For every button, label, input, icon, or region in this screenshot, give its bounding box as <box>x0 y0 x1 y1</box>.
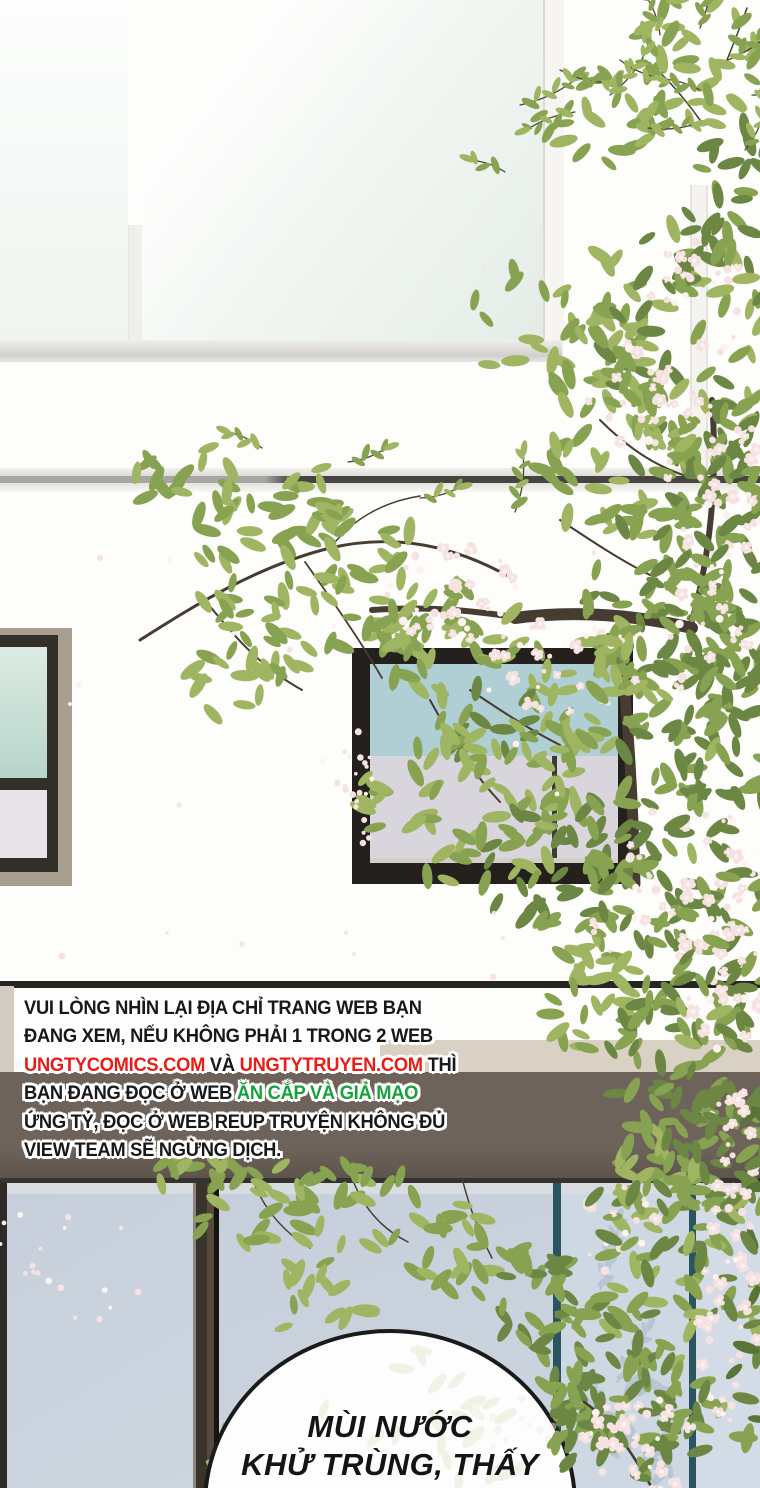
bottom-window-pane-left <box>0 1194 193 1488</box>
watermark-line: UNGTYCOMICS.COM VÀ UNGTYTRUYEN.COM THÌ <box>24 1051 513 1079</box>
bottom-window-teal-divider-2 <box>689 1183 696 1488</box>
wall-sill-shadow <box>0 483 760 492</box>
watermark-segment: ỨNG TỶ, ĐỌC Ở WEB REUP TRUYỆN KHÔNG ĐỦ <box>24 1111 445 1133</box>
watermark-text: VUI LÒNG NHÌN LẠI ĐỊA CHỈ TRANG WEB BẠNĐ… <box>24 994 513 1164</box>
watermark-segment: VIEW TEAM SẼ NGỪNG DỊCH. <box>24 1139 281 1161</box>
wall-sill-band <box>0 468 760 476</box>
watermark-segment: ĐANG XEM, NẾU KHÔNG PHẢI 1 TRONG 2 WEB <box>24 1025 433 1047</box>
center-window-sill-strip <box>370 858 618 863</box>
skylight-glass-left <box>0 0 128 340</box>
speech-bubble-text: MÙI NƯỚC KHỬ TRÙNG, THẤY <box>205 1408 575 1484</box>
skylight-glass-main <box>142 0 543 340</box>
watermark-segment: VÀ <box>205 1054 240 1076</box>
bottom-window-pane-far-right <box>696 1194 760 1488</box>
watermark-segment: BẠN ĐANG ĐỌC Ở WEB <box>24 1082 237 1104</box>
wall-beige-strip-left <box>0 986 14 1072</box>
bottom-window-light-strip <box>0 1183 760 1194</box>
left-window-glass-lower <box>0 790 47 858</box>
skylight-frame-right <box>543 0 564 362</box>
watermark-segment: VUI LÒNG NHÌN LẠI ĐỊA CHỈ TRANG WEB BẠN <box>24 997 422 1019</box>
watermark-line: ỨNG TỶ, ĐỌC Ở WEB REUP TRUYỆN KHÔNG ĐỦ <box>24 1108 513 1136</box>
speech-line: KHỬ TRÙNG, THẤY <box>205 1446 575 1484</box>
skylight-sill <box>0 340 562 362</box>
center-window-mullion <box>552 756 557 858</box>
wall-sill-dark-line <box>0 476 760 483</box>
watermark-line: VUI LÒNG NHÌN LẠI ĐỊA CHỈ TRANG WEB BẠN <box>24 994 513 1022</box>
watermark-line: ĐANG XEM, NẾU KHÔNG PHẢI 1 TRONG 2 WEB <box>24 1022 513 1050</box>
watermark-line: BẠN ĐANG ĐỌC Ở WEB ĂN CẮP VÀ GIẢ MẠO <box>24 1079 513 1107</box>
wall-frame-faint-line <box>690 185 708 473</box>
watermark-segment: THÌ <box>423 1054 457 1076</box>
watermark-line: VIEW TEAM SẼ NGỪNG DỊCH. <box>24 1136 513 1164</box>
center-window-glass-lower <box>370 756 618 858</box>
left-window-glass-upper <box>0 647 47 778</box>
bottom-window-pane-right <box>561 1194 689 1488</box>
watermark-segment: ĂN CẮP VÀ GIẢ MẠO <box>237 1082 418 1104</box>
watermark-segment: UNGTYTRUYEN.COM <box>240 1054 423 1076</box>
watermark-segment: UNGTYCOMICS.COM <box>24 1054 205 1076</box>
center-window-glass-upper <box>370 664 618 756</box>
speech-line: MÙI NƯỚC <box>205 1408 575 1446</box>
comic-page: MÙI NƯỚC KHỬ TRÙNG, THẤY VUI LÒNG NHÌN L… <box>0 0 760 1488</box>
bottom-window-left-edge <box>0 1183 7 1488</box>
wall-line-black <box>0 981 760 988</box>
